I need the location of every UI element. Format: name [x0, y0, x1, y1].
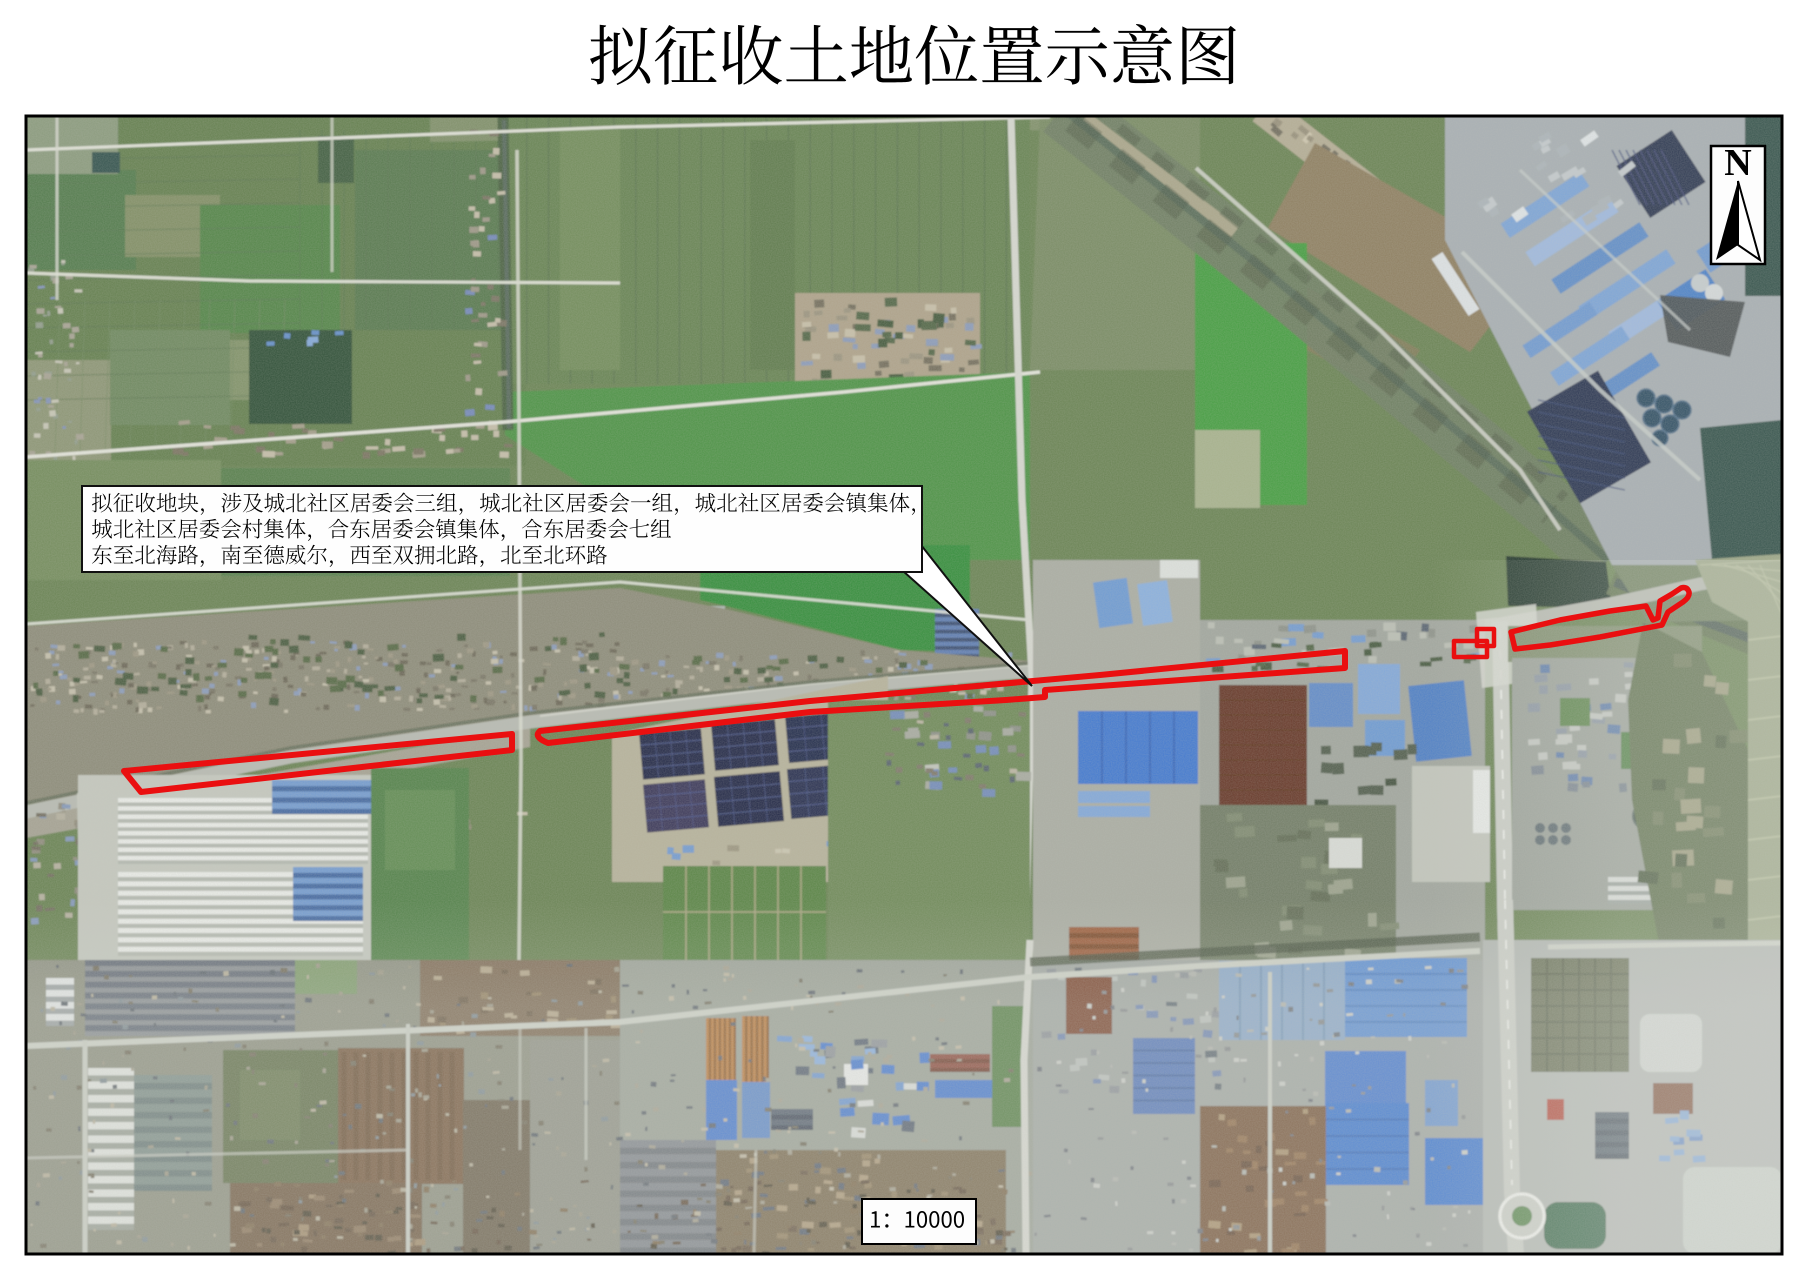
svg-text:N: N — [1724, 142, 1751, 184]
